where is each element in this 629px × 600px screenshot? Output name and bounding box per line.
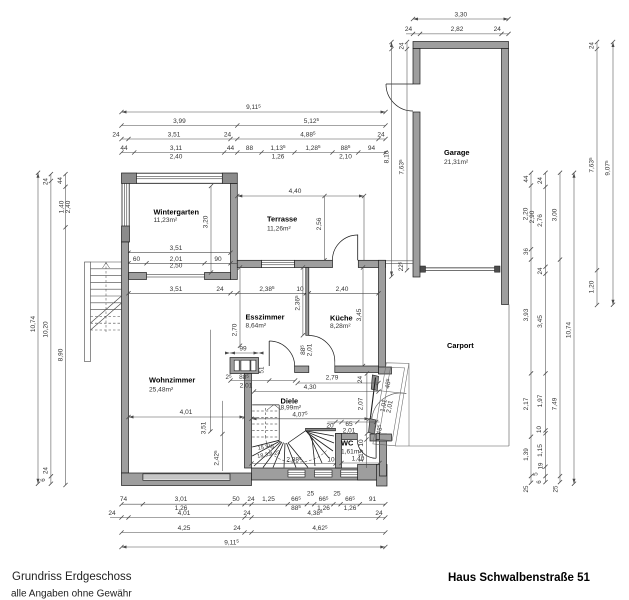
svg-text:2,17: 2,17 (523, 397, 530, 410)
svg-text:3,20: 3,20 (203, 215, 210, 228)
svg-text:2,56: 2,56 (316, 217, 323, 230)
svg-text:4,30: 4,30 (304, 384, 317, 391)
svg-text:24: 24 (405, 26, 413, 33)
svg-text:8,90: 8,90 (58, 348, 65, 361)
svg-text:24: 24 (233, 525, 241, 532)
svg-text:44: 44 (227, 145, 235, 152)
svg-text:10,74: 10,74 (30, 315, 37, 332)
svg-text:5: 5 (533, 472, 540, 476)
svg-text:Wintergarten: Wintergarten (154, 208, 200, 217)
svg-text:2,01: 2,01 (240, 383, 253, 390)
svg-text:2,40: 2,40 (170, 154, 183, 161)
svg-text:6: 6 (40, 478, 47, 482)
svg-text:1,40: 1,40 (352, 456, 365, 463)
svg-text:25,48m²: 25,48m² (149, 387, 174, 394)
svg-text:Haus Schwalbenstraße 51: Haus Schwalbenstraße 51 (448, 572, 590, 584)
svg-text:4,01: 4,01 (180, 409, 193, 416)
svg-text:3,45: 3,45 (356, 308, 363, 321)
svg-text:24: 24 (377, 131, 385, 138)
svg-text:Esszimmer: Esszimmer (246, 313, 285, 322)
svg-text:10: 10 (536, 426, 543, 433)
svg-text:24: 24 (243, 510, 251, 517)
svg-text:3,51: 3,51 (201, 421, 208, 434)
svg-text:Garage: Garage (444, 148, 469, 157)
svg-text:24: 24 (247, 496, 255, 503)
svg-text:50: 50 (232, 496, 240, 503)
svg-text:24: 24 (224, 131, 232, 138)
svg-text:25: 25 (307, 491, 315, 498)
svg-text:24: 24 (537, 267, 544, 274)
svg-text:24: 24 (375, 510, 383, 517)
svg-text:Grundriss Erdgeschoss: Grundriss Erdgeschoss (12, 571, 132, 583)
svg-text:3,93: 3,93 (523, 308, 530, 321)
svg-text:44: 44 (120, 145, 128, 152)
svg-text:Carport: Carport (447, 341, 474, 350)
svg-text:2,40: 2,40 (65, 200, 72, 213)
svg-text:2,10: 2,10 (339, 154, 352, 161)
svg-text:6: 6 (536, 480, 543, 484)
svg-text:25: 25 (553, 485, 560, 492)
svg-text:25: 25 (333, 491, 341, 498)
svg-text:2,70: 2,70 (232, 323, 239, 336)
svg-text:WC: WC (341, 439, 354, 448)
svg-text:4,25: 4,25 (178, 525, 191, 532)
svg-text:3,51: 3,51 (168, 131, 181, 138)
svg-text:3,99: 3,99 (173, 118, 186, 125)
svg-text:4,40: 4,40 (289, 188, 302, 195)
svg-text:24: 24 (494, 26, 502, 33)
svg-text:74: 74 (120, 496, 128, 503)
svg-text:24: 24 (108, 510, 116, 517)
svg-text:11,26m²: 11,26m² (267, 226, 292, 233)
svg-text:25: 25 (523, 485, 530, 492)
svg-text:20: 20 (326, 423, 334, 430)
svg-text:1,39: 1,39 (523, 448, 530, 461)
svg-text:8,28m²: 8,28m² (330, 323, 351, 330)
svg-text:1,20: 1,20 (589, 280, 596, 293)
svg-text:24: 24 (399, 42, 406, 49)
svg-text:2,82: 2,82 (451, 26, 464, 33)
svg-text:1,97: 1,97 (537, 394, 544, 407)
svg-text:24: 24 (112, 131, 120, 138)
svg-text:1,26: 1,26 (344, 505, 357, 512)
svg-text:3,51: 3,51 (170, 245, 183, 252)
svg-text:10: 10 (358, 439, 365, 447)
svg-text:24: 24 (43, 178, 50, 185)
svg-text:3,00: 3,00 (552, 208, 559, 221)
svg-text:3,51: 3,51 (170, 286, 183, 293)
svg-text:alle Angaben ohne Gewähr: alle Angaben ohne Gewähr (11, 589, 132, 600)
svg-text:24: 24 (357, 376, 364, 384)
svg-text:2,76: 2,76 (537, 214, 544, 227)
svg-text:24: 24 (43, 467, 50, 474)
svg-text:44: 44 (523, 175, 530, 182)
svg-text:4,01: 4,01 (178, 510, 191, 517)
svg-text:Wohnzimmer: Wohnzimmer (149, 376, 195, 385)
svg-text:24: 24 (537, 177, 544, 184)
svg-text:60: 60 (133, 256, 141, 263)
svg-text:36: 36 (523, 248, 530, 255)
svg-text:99: 99 (239, 346, 247, 353)
svg-text:2,01: 2,01 (343, 427, 356, 434)
svg-text:24: 24 (216, 286, 224, 293)
svg-text:3,30: 3,30 (454, 12, 467, 19)
svg-text:Terrasse: Terrasse (267, 215, 297, 224)
svg-text:19: 19 (537, 462, 544, 469)
svg-text:10,74: 10,74 (566, 321, 573, 338)
svg-text:10: 10 (327, 457, 335, 464)
svg-text:3,01: 3,01 (175, 496, 188, 503)
svg-text:1,25: 1,25 (262, 496, 275, 503)
svg-text:2,90: 2,90 (529, 210, 536, 223)
svg-text:1,15: 1,15 (537, 444, 544, 457)
svg-text:Küche: Küche (330, 314, 353, 323)
svg-text:51: 51 (259, 366, 266, 373)
svg-text:94: 94 (368, 145, 376, 152)
svg-text:3,45: 3,45 (537, 315, 544, 328)
svg-text:10,20: 10,20 (43, 321, 50, 338)
svg-text:88: 88 (246, 145, 254, 152)
svg-text:2,07: 2,07 (358, 397, 365, 410)
svg-text:2,79: 2,79 (326, 375, 339, 382)
svg-text:8,64m²: 8,64m² (246, 323, 267, 330)
svg-text:24: 24 (589, 42, 596, 49)
svg-text:2,40: 2,40 (336, 286, 349, 293)
svg-text:2,50: 2,50 (170, 262, 183, 269)
svg-text:7,49: 7,49 (552, 397, 559, 410)
svg-text:11,23m²: 11,23m² (154, 217, 179, 224)
svg-text:3,11: 3,11 (170, 145, 183, 152)
svg-text:2,01: 2,01 (307, 343, 314, 356)
svg-text:91: 91 (369, 496, 377, 503)
svg-text:21,31m²: 21,31m² (444, 159, 469, 166)
svg-text:44: 44 (57, 177, 64, 184)
svg-text:1,26: 1,26 (272, 154, 285, 161)
svg-text:90: 90 (214, 256, 222, 263)
